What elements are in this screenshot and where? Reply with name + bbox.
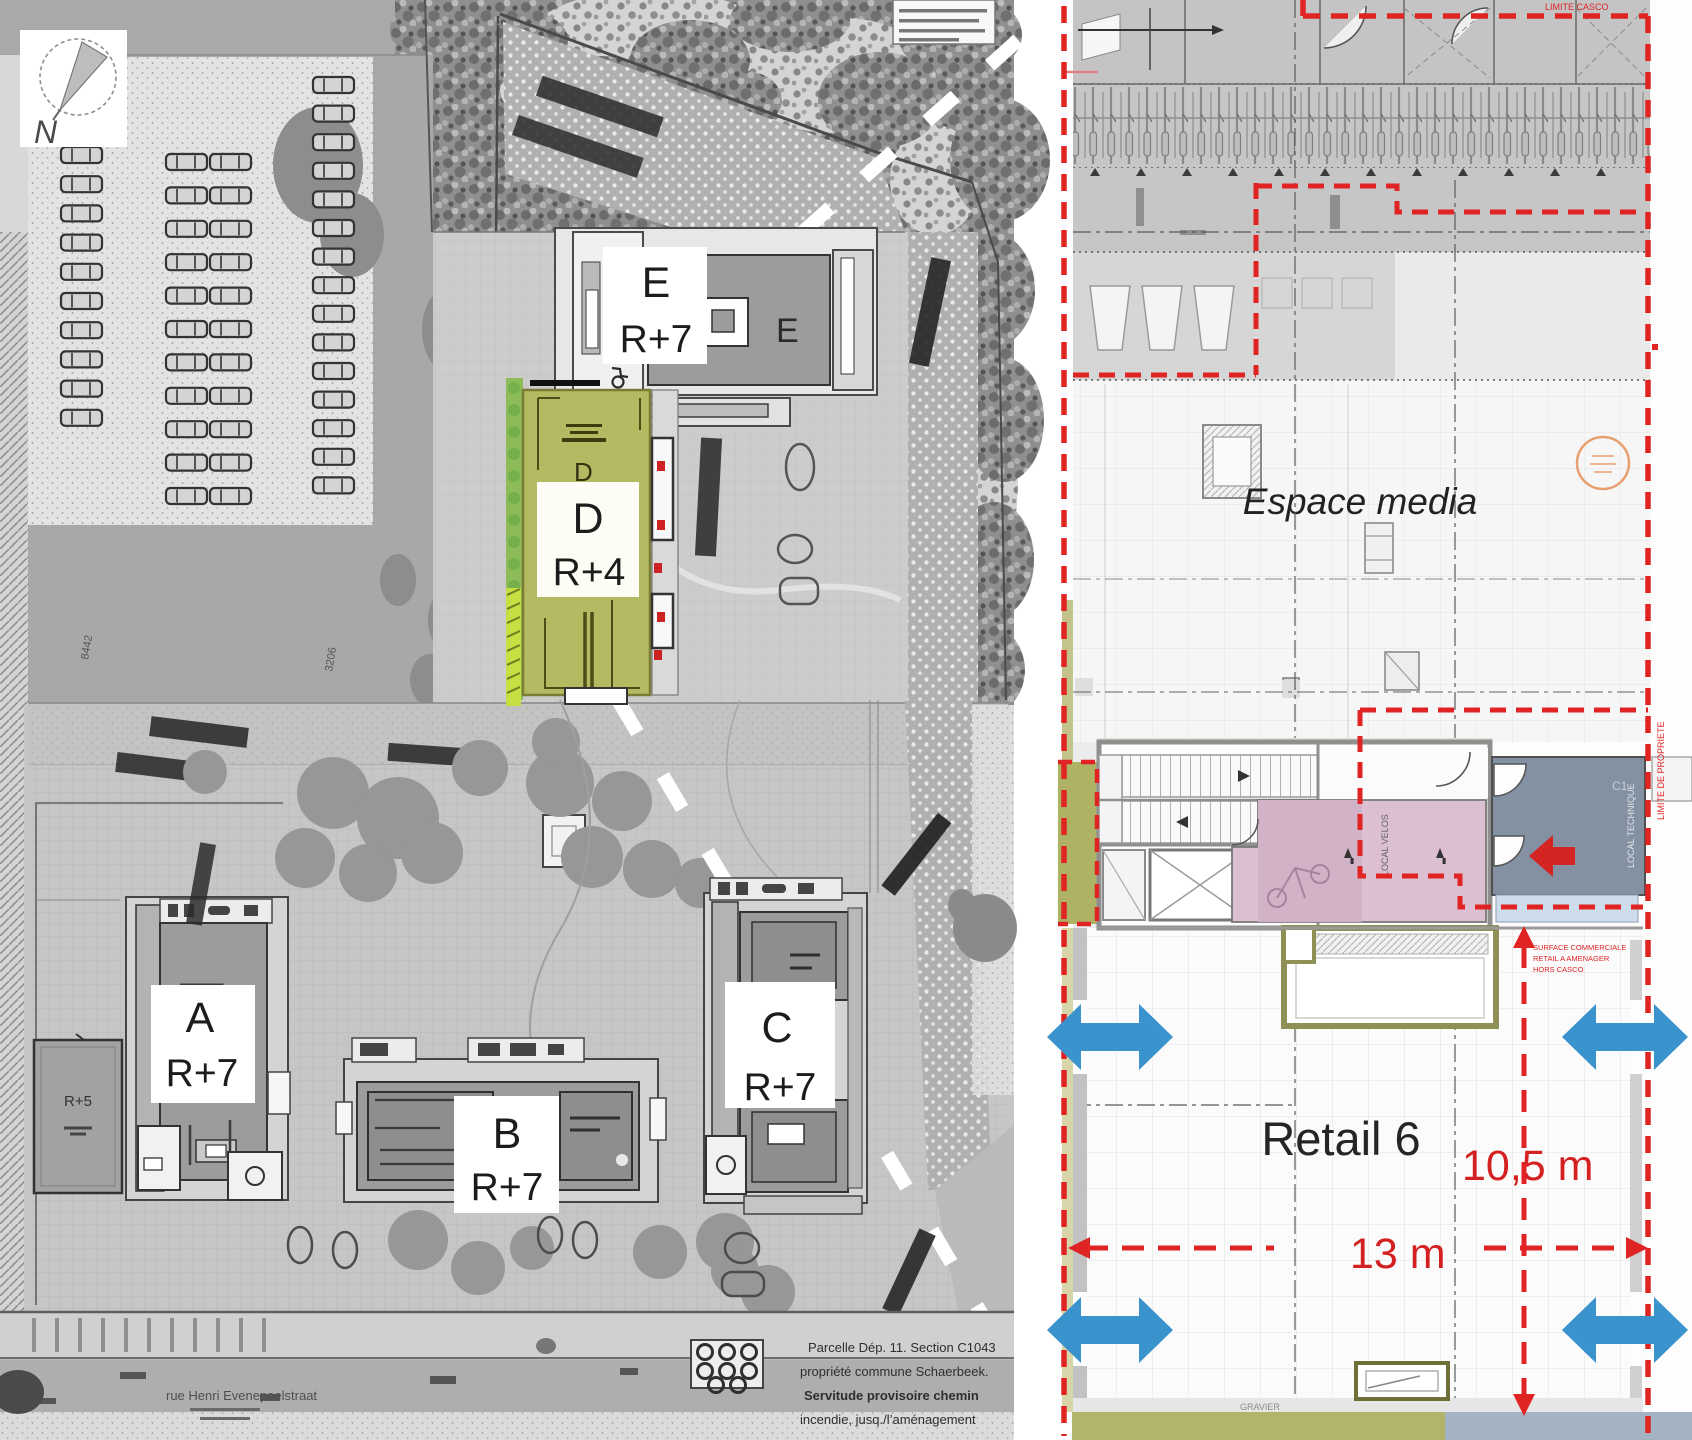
svg-text:C: C xyxy=(761,1004,792,1052)
svg-text:SURFACE COMMERCIALE: SURFACE COMMERCIALE xyxy=(1533,943,1626,952)
svg-text:N: N xyxy=(34,114,58,150)
svg-text:10,5 m: 10,5 m xyxy=(1462,1142,1593,1190)
svg-text:13 m: 13 m xyxy=(1350,1230,1446,1278)
svg-text:R+7: R+7 xyxy=(166,1052,239,1095)
svg-text:R+7: R+7 xyxy=(620,318,693,361)
svg-text:GRAVIER: GRAVIER xyxy=(1240,1402,1280,1412)
svg-text:D: D xyxy=(572,495,603,543)
svg-text:propriété commune Schaerbeek.: propriété commune Schaerbeek. xyxy=(800,1364,989,1379)
svg-text:E: E xyxy=(642,259,671,307)
svg-text:incendie, jusq./l’aménagement: incendie, jusq./l’aménagement xyxy=(800,1412,976,1427)
svg-text:A: A xyxy=(186,994,215,1042)
svg-text:R+7: R+7 xyxy=(744,1066,817,1109)
svg-text:Parcelle Dép. 11. Section C104: Parcelle Dép. 11. Section C1043 xyxy=(808,1340,996,1355)
svg-text:R+5: R+5 xyxy=(64,1093,92,1110)
svg-text:B: B xyxy=(493,1110,522,1158)
svg-text:LIMITE CASCO: LIMITE CASCO xyxy=(1545,2,1609,12)
svg-text:Retail 6: Retail 6 xyxy=(1261,1112,1420,1165)
svg-text:Espace media: Espace media xyxy=(1243,481,1477,522)
svg-text:C1: C1 xyxy=(1612,779,1628,793)
svg-text:Servitude provisoire chemin: Servitude provisoire chemin xyxy=(804,1388,979,1403)
svg-text:R+4: R+4 xyxy=(553,551,626,594)
svg-text:RETAIL A AMENAGER: RETAIL A AMENAGER xyxy=(1533,954,1610,963)
svg-text:LIMITE DE PROPRIETE: LIMITE DE PROPRIETE xyxy=(1656,721,1666,820)
svg-text:R+7: R+7 xyxy=(471,1166,544,1209)
svg-text:LOCAL TECHNIQUE: LOCAL TECHNIQUE xyxy=(1626,783,1636,868)
svg-text:LOCAL VELOS: LOCAL VELOS xyxy=(1380,814,1390,876)
svg-text:E: E xyxy=(776,312,799,350)
svg-text:rue Henri Evenepoelstraat: rue Henri Evenepoelstraat xyxy=(166,1388,317,1403)
svg-text:HORS CASCO: HORS CASCO xyxy=(1533,965,1584,974)
